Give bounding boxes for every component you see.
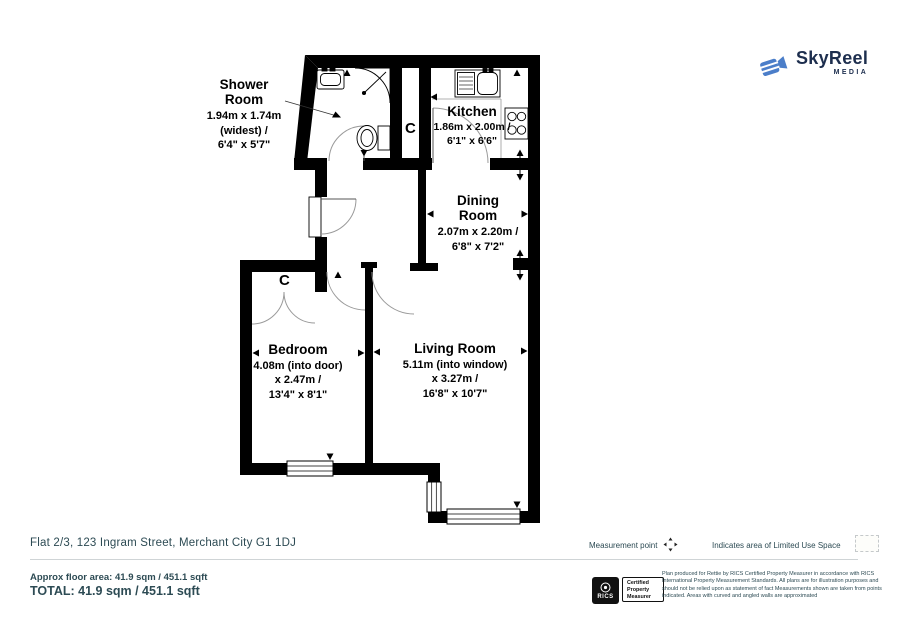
room-name: Bedroom <box>244 342 352 357</box>
room-label-shower: Shower Room 1.94m x 1.74m (widest) / 6'4… <box>186 77 302 152</box>
room-dim: 4.08m (into door) <box>244 359 352 373</box>
room-dim: 1.86m x 2.00m / <box>424 121 520 135</box>
total-floor-area: TOTAL: 41.9 sqm / 451.1 sqft <box>30 584 200 598</box>
rics-cert-line: Property <box>627 587 663 594</box>
limited-use-label: Indicates area of Limited Use Space <box>712 541 841 550</box>
approx-floor-area: Approx floor area: 41.9 sqm / 451.1 sqft <box>30 572 207 583</box>
room-dim: 1.94m x 1.74m <box>186 109 302 123</box>
room-label-kitchen: Kitchen 1.86m x 2.00m / 6'1" x 6'6" <box>424 104 520 148</box>
four-way-arrow-icon <box>663 537 678 552</box>
room-dim: 16'8" x 10'7" <box>399 387 511 401</box>
room-label-living: Living Room 5.11m (into window) x 3.27m … <box>399 341 511 401</box>
room-dim: 13'4" x 8'1" <box>244 388 352 402</box>
room-name: Dining Room <box>448 193 508 223</box>
rics-word: RICS <box>597 594 613 600</box>
rics-cert-line: Measurer <box>627 594 663 601</box>
room-label-bedroom: Bedroom 4.08m (into door) x 2.47m / 13'4… <box>244 342 352 402</box>
rics-certified-box: Certified Property Measurer <box>622 577 664 602</box>
measurement-point-label: Measurement point <box>589 541 657 550</box>
room-dim: 6'1" x 6'6" <box>424 135 520 149</box>
toilet-cistern-icon <box>378 126 390 150</box>
room-name: Shower Room <box>208 77 280 107</box>
footer-divider <box>30 559 858 560</box>
logo-subtitle: MEDIA <box>834 69 869 76</box>
rics-logo: RICS <box>592 577 619 604</box>
room-dim: 6'4" x 5'7" <box>186 138 302 152</box>
room-name: Kitchen <box>424 104 520 119</box>
room-label-dining: Dining Room 2.07m x 2.20m / 6'8" x 7'2" <box>422 193 534 254</box>
dashed-area-swatch <box>855 535 879 552</box>
logo-name: SkyReel <box>796 49 868 67</box>
entrance-door-recess <box>309 197 321 237</box>
rics-badge: RICS Certified Property Measurer <box>592 577 664 604</box>
disclaimer-text: Plan produced for Rettie by RICS Certifi… <box>662 571 890 600</box>
rics-lion-emblem <box>600 582 611 593</box>
room-name: Living Room <box>399 341 511 356</box>
room-dim: 5.11m (into window) <box>399 358 511 372</box>
room-dim: x 3.27m / <box>399 372 511 386</box>
skyreel-logo: SkyReel MEDIA <box>757 49 868 83</box>
room-dim: 2.07m x 2.20m / <box>422 225 534 239</box>
property-address: Flat 2/3, 123 Ingram Street, Merchant Ci… <box>30 537 296 549</box>
video-camera-icon <box>757 49 791 83</box>
rics-cert-line: Certified <box>627 580 663 587</box>
floorplan-page: Shower Room 1.94m x 1.74m (widest) / 6'4… <box>0 0 900 636</box>
room-dim: (widest) / <box>186 124 302 138</box>
cupboard-label-top: C <box>405 120 416 137</box>
room-dim: 6'8" x 7'2" <box>422 240 534 254</box>
shower-room-fixtures <box>317 67 390 151</box>
cupboard-label-bedroom: C <box>279 272 290 289</box>
room-dim: x 2.47m / <box>244 373 352 387</box>
